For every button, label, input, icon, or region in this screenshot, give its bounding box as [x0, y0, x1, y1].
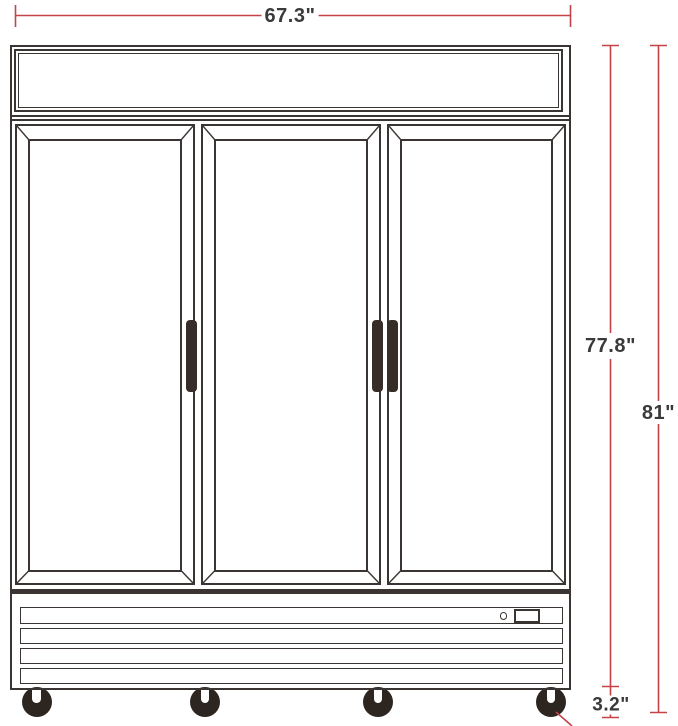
door-3-handle — [387, 320, 398, 392]
caster-fork-notch — [201, 689, 209, 704]
cabinet-height-dimension-label: 77.8" — [582, 336, 639, 356]
grill-top-band — [10, 589, 571, 594]
width-dimension-label: 67.3" — [262, 6, 319, 26]
header-divider-line — [10, 115, 571, 117]
caster-fork-notch — [32, 689, 40, 704]
indicator-light-icon — [500, 612, 508, 620]
door-2-handle — [372, 320, 383, 392]
caster-wheel-2 — [190, 687, 220, 717]
cabinet-bottom-line — [10, 688, 571, 691]
louver-slat-3 — [20, 648, 563, 665]
door-1-handle — [186, 320, 197, 392]
cabinet-height-dimension-line — [602, 45, 619, 687]
caster-fork-notch — [374, 689, 382, 704]
louver-slat-4 — [20, 668, 563, 685]
caster-fork-notch — [547, 689, 555, 704]
caster-wheel-1 — [22, 687, 52, 717]
overall-height-dimension-line — [650, 45, 667, 713]
header-divider-line — [10, 119, 571, 121]
spec-drawing-canvas: 67.3" 77.8" 81" 3.2" — [0, 0, 678, 726]
overall-height-dimension-label: 81" — [639, 403, 678, 423]
door-3-glass-pane — [400, 139, 553, 572]
door-2-glass-pane — [214, 139, 368, 572]
thermostat-display-box — [514, 609, 540, 623]
louver-slat-1 — [20, 607, 563, 624]
door-1-glass-pane — [28, 139, 182, 572]
louver-slat-2 — [20, 628, 563, 645]
sign-panel-inner-frame — [18, 53, 559, 108]
caster-height-dimension-label: 3.2" — [589, 696, 632, 715]
caster-wheel-3 — [363, 687, 393, 717]
caster-wheel-4 — [536, 687, 566, 717]
